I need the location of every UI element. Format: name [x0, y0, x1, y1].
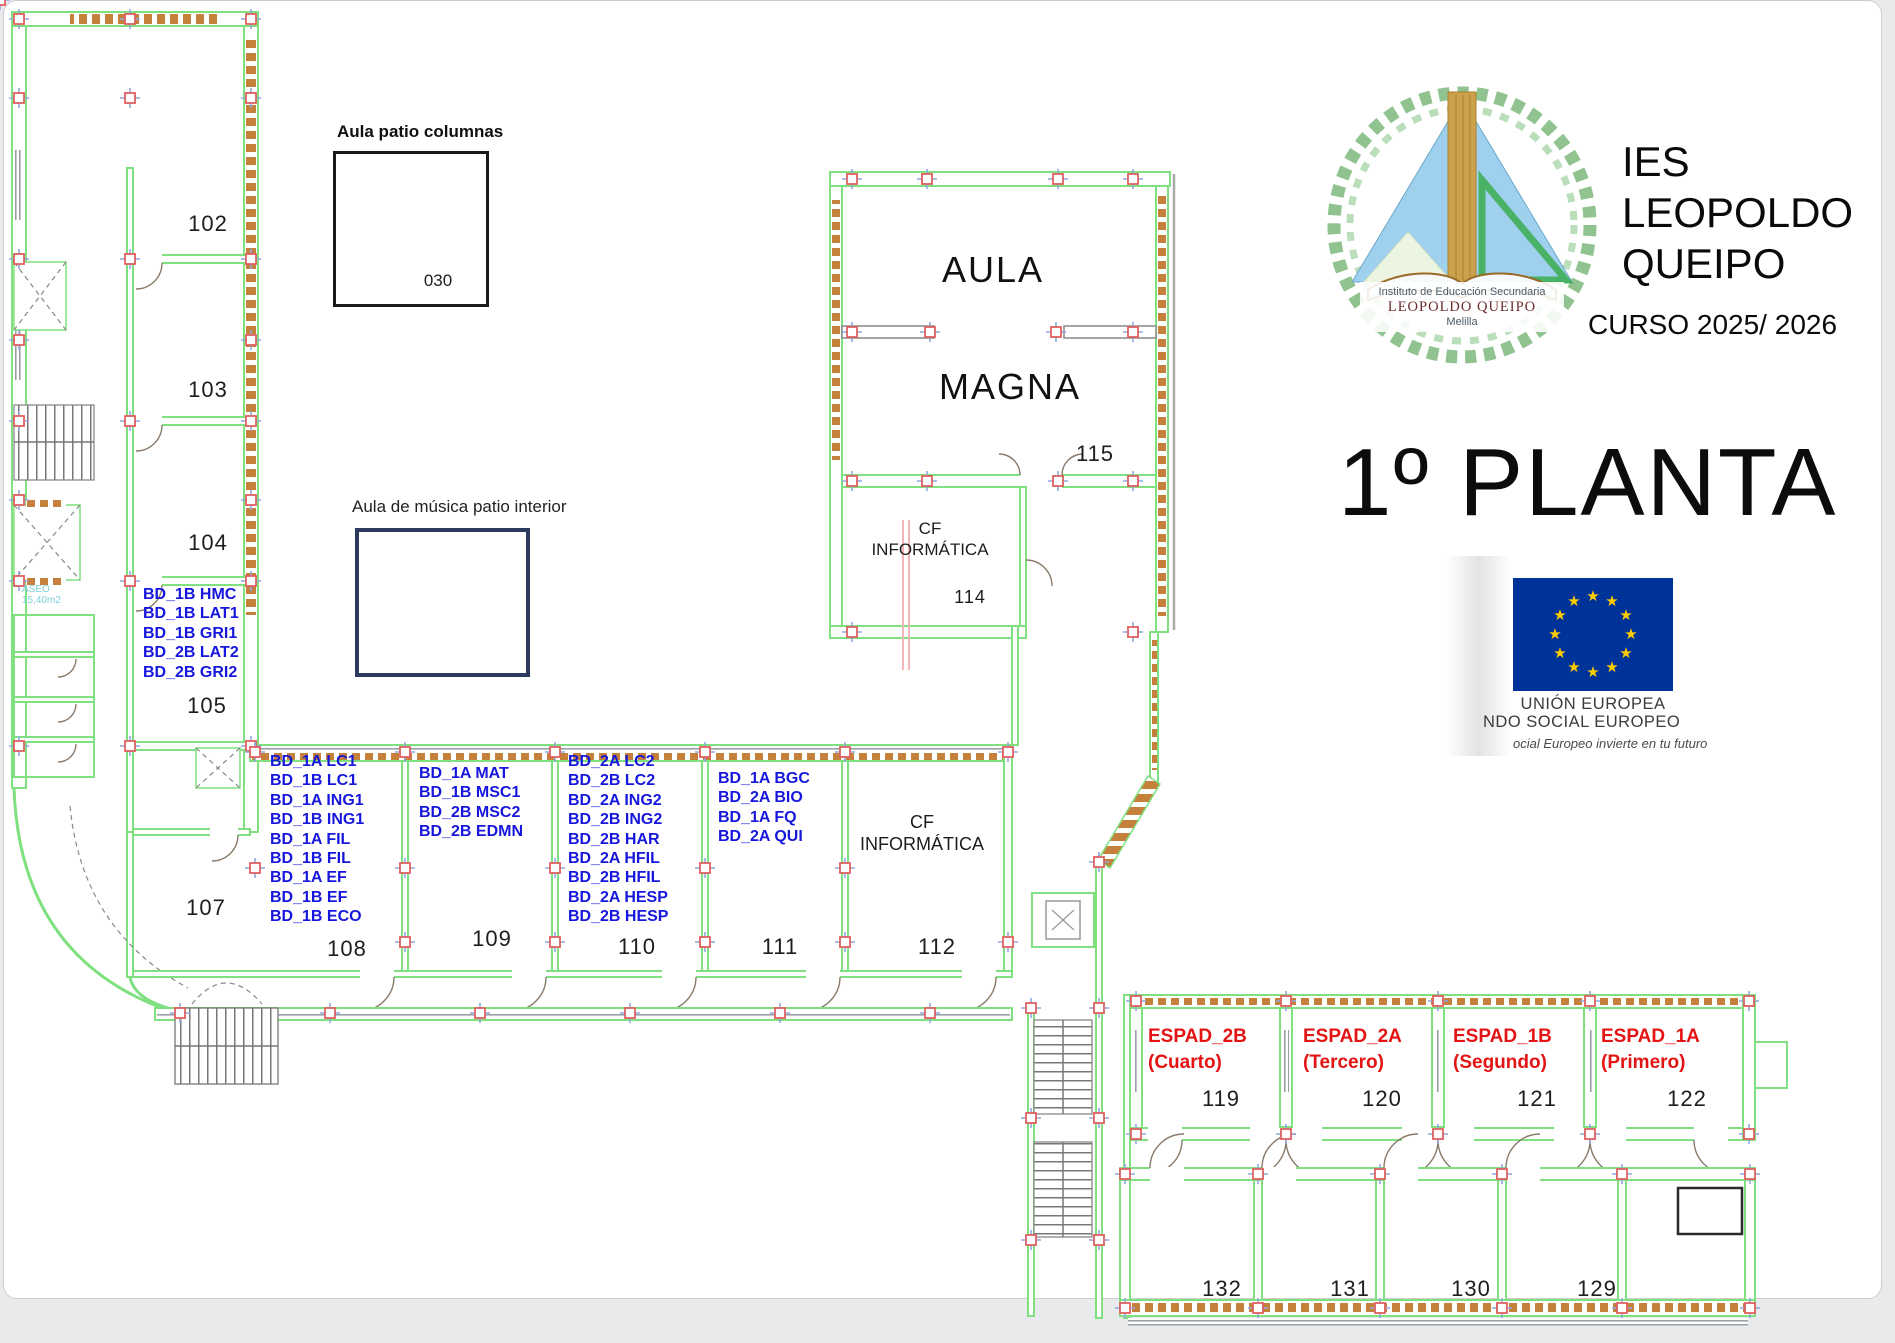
room-109-number: 109 [472, 926, 512, 952]
course-year: CURSO 2025/ 2026 [1588, 309, 1837, 341]
musica-label: Aula de música patio interior [352, 497, 567, 517]
room-122-number: 122 [1667, 1086, 1707, 1112]
svg-text:★: ★ [1553, 645, 1566, 662]
svg-text:★: ★ [1567, 593, 1580, 610]
aula-magna-word-aula: AULA [942, 249, 1044, 291]
school-name: IES LEOPOLDO QUEIPO [1622, 136, 1853, 289]
room-102-number: 102 [188, 211, 228, 237]
eu-fondo-social-label: NDO SOCIAL EUROPEO [1483, 713, 1680, 732]
logo-text-name: LEOPOLDO QUEIPO [1388, 299, 1536, 316]
room-103-number: 103 [188, 377, 228, 403]
svg-text:★: ★ [1553, 607, 1566, 624]
room-109-codes: BD_1A MAT BD_1B MSC1 BD_2B MSC2 BD_2B ED… [419, 764, 523, 842]
svg-text:★: ★ [1567, 659, 1580, 676]
room-129-number: 129 [1577, 1276, 1617, 1302]
room-110-codes: BD_2A LC2 BD_2B LC2 BD_2A ING2 BD_2B ING… [568, 752, 668, 927]
floor-plan-page: .w{fill:#fff;stroke:#7fe07f;stroke-width… [0, 0, 1895, 1343]
svg-text:★: ★ [1548, 626, 1561, 643]
room-132-number: 132 [1202, 1276, 1242, 1302]
room-108-codes: BD_1A LC1 BD_1B LC1 BD_1A ING1 BD_1B ING… [270, 752, 364, 927]
room-114-label: CF INFORMÁTICA [871, 518, 988, 560]
room-108-number: 108 [327, 936, 367, 962]
svg-text:★: ★ [1586, 664, 1599, 681]
espad-119-label: ESPAD_2B (Cuarto) [1148, 1024, 1247, 1076]
logo-text-city: Melilla [1446, 316, 1477, 328]
eu-flag-stars: ★★★ ★★★ ★★★ ★★★ [1513, 578, 1673, 691]
room-105-number: 105 [187, 693, 227, 719]
room-130-number: 130 [1451, 1276, 1491, 1302]
stairs-icon-east-upper [1034, 1020, 1092, 1114]
room-115-number: 115 [1076, 441, 1114, 467]
room-107-number: 107 [186, 895, 226, 921]
room-030-number: 030 [424, 271, 452, 291]
eu-slogan-label: ocial Europeo invierte en tu futuro [1513, 736, 1707, 751]
eu-union-label: UNIÓN EUROPEA [1521, 695, 1666, 714]
room-111-codes: BD_1A BGC BD_2A BIO BD_1A FQ BD_2A QUI [718, 769, 810, 847]
room-112-number: 112 [918, 934, 956, 960]
room-131-number: 131 [1330, 1276, 1370, 1302]
room-104-number: 104 [188, 530, 228, 556]
svg-text:★: ★ [1624, 626, 1637, 643]
aseo-label: ASEO 15,40m2 [22, 584, 61, 606]
svg-text:★: ★ [1605, 593, 1618, 610]
room-112-label: CF INFORMÁTICA [860, 811, 984, 855]
room-120-number: 120 [1362, 1086, 1402, 1112]
patio-columnas-label: Aula patio columnas [337, 122, 503, 142]
stairs-icon-south [175, 983, 278, 1084]
room-111-number: 111 [762, 934, 798, 960]
connector-corridor-structure [1028, 862, 1130, 1318]
espad-121-label: ESPAD_1B (Segundo) [1453, 1024, 1552, 1076]
elevator-icon [1032, 893, 1094, 947]
room-121-number: 121 [1517, 1086, 1557, 1112]
svg-text:★: ★ [1619, 607, 1632, 624]
patio-columnas-box [333, 151, 489, 307]
stairs-icon-east-lower [1034, 1142, 1092, 1237]
floor-title: 1º PLANTA [1338, 428, 1837, 538]
room-119-number: 119 [1202, 1086, 1240, 1112]
stairs-icon-left-wing [14, 405, 94, 480]
svg-text:★: ★ [1605, 659, 1618, 676]
room-114-number: 114 [954, 587, 986, 608]
svg-text:★: ★ [1586, 588, 1599, 605]
espad-122-label: ESPAD_1A (Primero) [1601, 1024, 1700, 1076]
room-110-number: 110 [618, 934, 656, 960]
left-wing-structure [12, 12, 258, 1013]
espad-120-label: ESPAD_2A (Tercero) [1303, 1024, 1402, 1076]
eu-flag-icon: ★★★ ★★★ ★★★ ★★★ [1513, 578, 1673, 691]
room-105-codes: BD_1B HMC BD_1B LAT1 BD_1B GRI1 BD_2B LA… [143, 585, 239, 682]
svg-text:★: ★ [1619, 645, 1632, 662]
logo-text-institute: Instituto de Educación Secundaria [1379, 286, 1546, 298]
aula-magna-word-magna: MAGNA [939, 366, 1081, 408]
musica-box [355, 528, 530, 677]
